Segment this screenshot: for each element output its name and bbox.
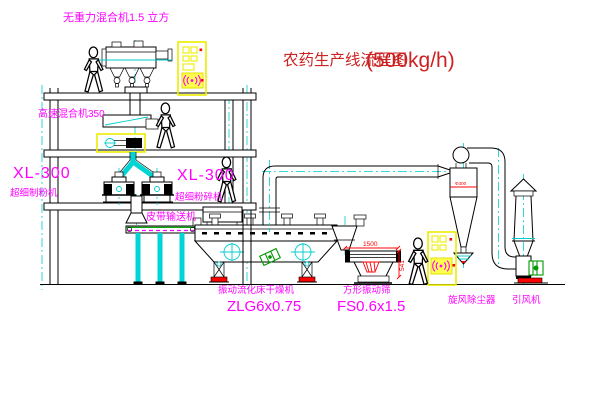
high-speed-mixer: [97, 100, 158, 152]
cad-drawing-surface: 1500 541 Φ300: [0, 0, 600, 403]
label-mill-left-model: XL-300: [13, 165, 71, 182]
label-high-speed-mixer: 高速混合机350: [38, 107, 105, 120]
label-mill-left-name: 超细制粉机: [10, 187, 58, 199]
label-screen-model: FS0.6x1.5: [337, 298, 405, 315]
label-screen-name: 方形振动筛: [343, 284, 391, 296]
label-fan: 引风机: [512, 294, 541, 306]
label-belt-conveyor: 皮带输送机: [146, 210, 196, 223]
vibrating-screen: [345, 251, 401, 284]
label-dryer-name: 振动流化床干燥机: [218, 284, 295, 296]
cyclone-separator: Φ300: [450, 143, 477, 268]
label-gravity-mixer: 无重力混合机1.5 立方: [63, 10, 169, 24]
dryer-foot-right: [297, 262, 317, 282]
label-cyclone: 旋风除尘器: [448, 294, 496, 306]
control-cabinet-top: [178, 42, 206, 95]
label-mill-right-name: 超细粉碎机: [175, 191, 223, 203]
drawing-title-capacity: (500kg/h): [366, 49, 455, 72]
person-figure: [409, 238, 428, 284]
label-dryer-model: ZLG6x0.75: [227, 298, 301, 315]
cyclone-tag-text: Φ300: [455, 181, 467, 186]
fluid-bed-dryer: [195, 207, 337, 282]
label-mill-right-model: XL-300: [177, 167, 235, 184]
screen-vibrator-motor: [363, 262, 379, 272]
dim-541-text: 541: [399, 260, 406, 271]
induced-draft-fan: [514, 256, 548, 283]
screen-feed-transition: [332, 215, 366, 255]
process-flow-drawing: 1500 541 Φ300: [0, 0, 600, 403]
person-figure: [156, 103, 174, 148]
control-cabinet-bottom: [428, 232, 456, 285]
person-figure: [84, 47, 102, 92]
cyclone-outlet-duct: [467, 148, 521, 269]
dryer-foot-left: [209, 262, 229, 282]
belt-conveyor: [126, 218, 201, 285]
dim-1500-text: 1500: [363, 241, 378, 248]
